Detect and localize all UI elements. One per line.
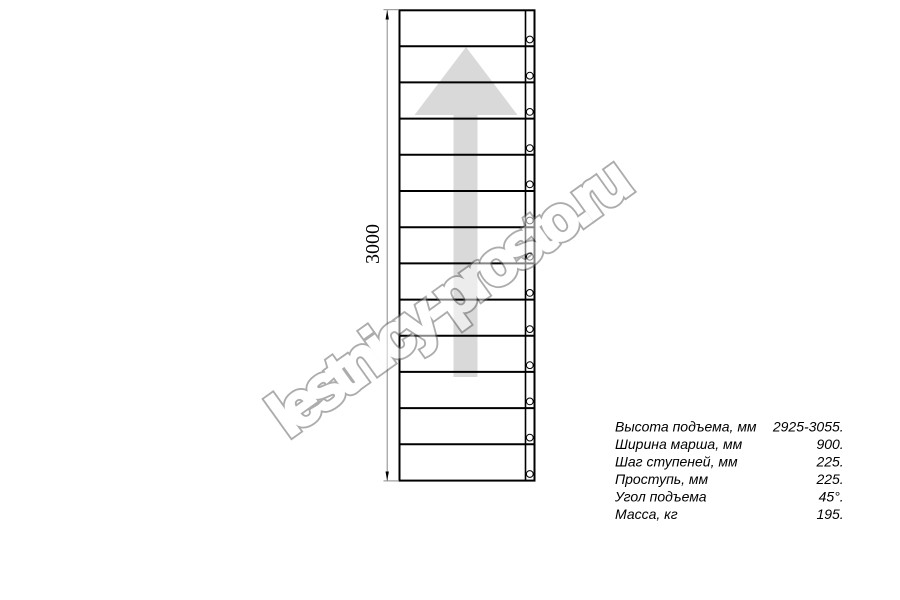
svg-text:Ширина марша, мм: Ширина марша, мм bbox=[615, 436, 743, 452]
svg-text:45°.: 45°. bbox=[819, 489, 844, 505]
svg-text:195.: 195. bbox=[816, 506, 843, 522]
svg-text:Проступь, мм: Проступь, мм bbox=[615, 471, 709, 487]
svg-text:225.: 225. bbox=[815, 471, 843, 487]
svg-text:900.: 900. bbox=[816, 436, 843, 452]
svg-text:Шаг ступеней, мм: Шаг ступеней, мм bbox=[615, 454, 738, 470]
svg-text:Масса, кг: Масса, кг bbox=[615, 506, 678, 522]
svg-text:2925-3055.: 2925-3055. bbox=[772, 419, 844, 435]
svg-text:Угол подъема: Угол подъема bbox=[614, 489, 707, 505]
svg-text:3000: 3000 bbox=[362, 224, 384, 264]
svg-text:225.: 225. bbox=[815, 454, 843, 470]
svg-text:Высота подъема, мм: Высота подъема, мм bbox=[615, 419, 757, 435]
